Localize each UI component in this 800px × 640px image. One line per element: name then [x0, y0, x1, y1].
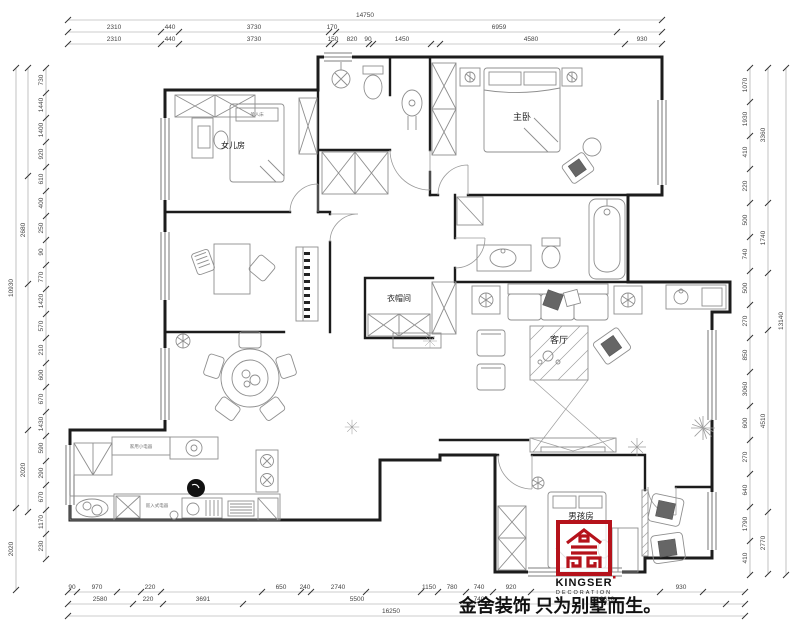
wardrobe-daughter-top	[175, 95, 255, 117]
single-bed-label: 单人床	[250, 111, 264, 118]
dim-label: 1440	[38, 97, 45, 112]
dim-label: 170	[327, 24, 338, 31]
dim-label: 10930	[8, 279, 15, 297]
dim-label: 2020	[8, 541, 15, 556]
dim-label: 220	[742, 180, 749, 191]
dim-label: 4580	[524, 36, 539, 43]
dim-label: 1420	[38, 293, 45, 308]
throw-pillow-light	[563, 289, 580, 306]
window-left-3	[160, 348, 170, 420]
door-bath-inner	[455, 238, 485, 268]
dim-label: 2580	[93, 596, 108, 603]
dim-label: 650	[276, 584, 287, 591]
dim-label: 3360	[760, 127, 767, 142]
dim-label: 570	[38, 320, 45, 331]
floor-plan-drawing: 14750 231044037301706959 231044037301508…	[0, 0, 800, 640]
builtin-label: 嵌入式电器	[146, 502, 169, 509]
piano	[296, 247, 318, 321]
dim-label: 820	[347, 36, 358, 43]
label-daughter-room: 女儿房	[221, 140, 245, 150]
dim-label: 3691	[196, 596, 211, 603]
kettle	[187, 479, 205, 497]
desk-study	[214, 244, 250, 294]
furniture-right-nook	[666, 285, 726, 309]
brand-block: KINGSER DECORATION 金舍装饰 只为别墅而生。	[458, 522, 662, 616]
dim-label: 150	[328, 36, 339, 43]
brand-tagline: 金舍装饰 只为别墅而生。	[458, 595, 662, 616]
dim-label: 1070	[742, 77, 749, 92]
wardrobe-cloak-right	[432, 282, 456, 334]
dim-label: 90	[38, 248, 45, 256]
door-master	[438, 165, 468, 195]
dim-label: 1790	[742, 516, 749, 531]
knob	[170, 511, 178, 519]
balcony-divider-hatch	[642, 490, 648, 556]
dim-label: 600	[38, 369, 45, 380]
furniture-bath-top	[332, 62, 422, 130]
furniture-dining	[176, 332, 297, 422]
dim-label: 1740	[760, 230, 767, 245]
dim-label: 640	[742, 484, 749, 495]
kingser-logo-icon	[558, 522, 610, 574]
dim-label: 6959	[492, 24, 507, 31]
dim-label: 13140	[778, 312, 785, 330]
furniture-living	[472, 284, 642, 452]
furniture-kitchen: 家用小电器 嵌入式电器	[70, 437, 280, 520]
dim-label: 270	[742, 315, 749, 326]
ceiling-fan-icon	[176, 334, 190, 348]
label-cloak-room: 衣帽间	[387, 293, 411, 303]
dim-total-bottom: 16250	[382, 608, 400, 615]
dim-label: 3730	[247, 24, 262, 31]
throw-pillow-dark	[543, 290, 564, 311]
door-boy	[498, 455, 532, 489]
dim-label: 670	[38, 491, 45, 502]
dim-total-top: 14750	[356, 12, 374, 19]
dim-label: 670	[38, 393, 45, 404]
dim-label: 780	[447, 584, 458, 591]
windows	[65, 52, 717, 577]
dim-label: 590	[38, 442, 45, 453]
dim-label: 210	[38, 344, 45, 355]
dim-label: 1930	[742, 111, 749, 126]
dim-label: 90	[68, 584, 76, 591]
brand-name: KINGSER	[555, 577, 612, 589]
dim-top: 14750 231044037301706959 231044037301508…	[65, 12, 665, 47]
plant-boy	[628, 438, 646, 456]
dim-label: 600	[742, 417, 749, 428]
tv-cabinet	[530, 438, 616, 452]
door-daughter	[290, 184, 318, 212]
brand-mark	[613, 576, 616, 579]
sofa-back	[508, 284, 608, 294]
dim-label: 400	[38, 197, 45, 208]
boy-desk	[612, 528, 638, 572]
dim-label: 410	[742, 552, 749, 563]
dim-label: 970	[92, 584, 103, 591]
label-master-room: 主卧	[513, 111, 531, 122]
dim-label: 4510	[760, 413, 767, 428]
dim-label: 740	[742, 248, 749, 259]
fridge	[74, 443, 112, 475]
dim-label: 440	[165, 24, 176, 31]
nook-vanity	[666, 285, 726, 309]
window-master	[657, 100, 667, 185]
dim-left: 109302020 26802020 730144014009206104002…	[8, 65, 49, 593]
dim-label: 1430	[38, 416, 45, 431]
plant-hall	[423, 334, 437, 348]
dim-label: 2310	[107, 36, 122, 43]
window-left-2	[160, 232, 170, 300]
dim-label: 1450	[395, 36, 410, 43]
toilet	[542, 246, 560, 268]
dim-label: 740	[474, 584, 485, 591]
stove	[256, 450, 278, 492]
wardrobe-daughter-side	[299, 98, 317, 154]
master-side-table	[583, 138, 601, 156]
window-bath-top	[324, 52, 352, 62]
dim-label: 930	[637, 36, 648, 43]
fan-icon-boy	[532, 477, 544, 489]
dim-label: 2770	[760, 535, 767, 550]
dim-label: 2020	[20, 462, 27, 477]
master-bed	[484, 68, 560, 152]
dim-label: 240	[300, 584, 311, 591]
label-boy-room: 男孩房	[568, 511, 594, 521]
tv	[541, 447, 605, 452]
dim-label: 500	[742, 214, 749, 225]
furniture-master	[460, 68, 601, 184]
dim-label: 5500	[350, 596, 365, 603]
dim-label: 270	[742, 451, 749, 462]
dim-label: 440	[165, 36, 176, 43]
window-balcony	[707, 492, 717, 550]
dim-label: 920	[38, 148, 45, 159]
dim-label: 920	[506, 584, 517, 591]
toilet-top	[364, 75, 382, 99]
appliances-label: 家用小电器	[130, 443, 153, 450]
dim-label: 930	[676, 584, 687, 591]
dim-label: 1150	[422, 584, 436, 591]
dim-label: 290	[38, 467, 45, 478]
wardrobe-master	[432, 63, 456, 155]
dim-label: 2680	[20, 222, 27, 237]
dim-label: 250	[38, 222, 45, 233]
pedestal-sink	[402, 90, 422, 116]
toilet-tank-top	[363, 66, 383, 74]
dim-label: 2310	[107, 24, 122, 31]
dim-label: 770	[38, 271, 45, 282]
dim-label: 410	[742, 146, 749, 157]
toilet-tank	[542, 238, 560, 246]
wardrobe-boy	[498, 506, 526, 570]
dim-label: 220	[143, 596, 154, 603]
dim-label: 1400	[38, 122, 45, 137]
dim-right: 1070193041022050074050027085030606002706…	[742, 65, 789, 578]
closet-corridor	[322, 152, 388, 194]
kitchen-sink	[182, 498, 222, 518]
window-left-1	[160, 118, 170, 200]
round-sink	[186, 440, 202, 456]
dim-label: 3730	[247, 36, 262, 43]
plant-dining	[345, 420, 359, 434]
dim-label: 90	[364, 36, 372, 43]
dim-label: 850	[742, 349, 749, 360]
label-living-room: 客厅	[550, 334, 568, 345]
door-bath-top	[390, 150, 430, 190]
dim-label: 730	[38, 74, 45, 85]
window-living	[707, 330, 717, 420]
dim-label: 2740	[331, 584, 346, 591]
furniture-study	[191, 244, 318, 321]
floor-plan-page: 14750 231044037301706959 231044037301508…	[0, 0, 800, 640]
dim-label: 610	[38, 173, 45, 184]
dim-label: 3060	[742, 381, 749, 396]
dim-label: 1170	[38, 515, 45, 529]
door-study	[330, 214, 358, 242]
dim-label: 500	[742, 282, 749, 293]
dim-label: 220	[145, 584, 156, 591]
vent-grille	[228, 501, 254, 516]
dim-label: 230	[38, 540, 45, 551]
